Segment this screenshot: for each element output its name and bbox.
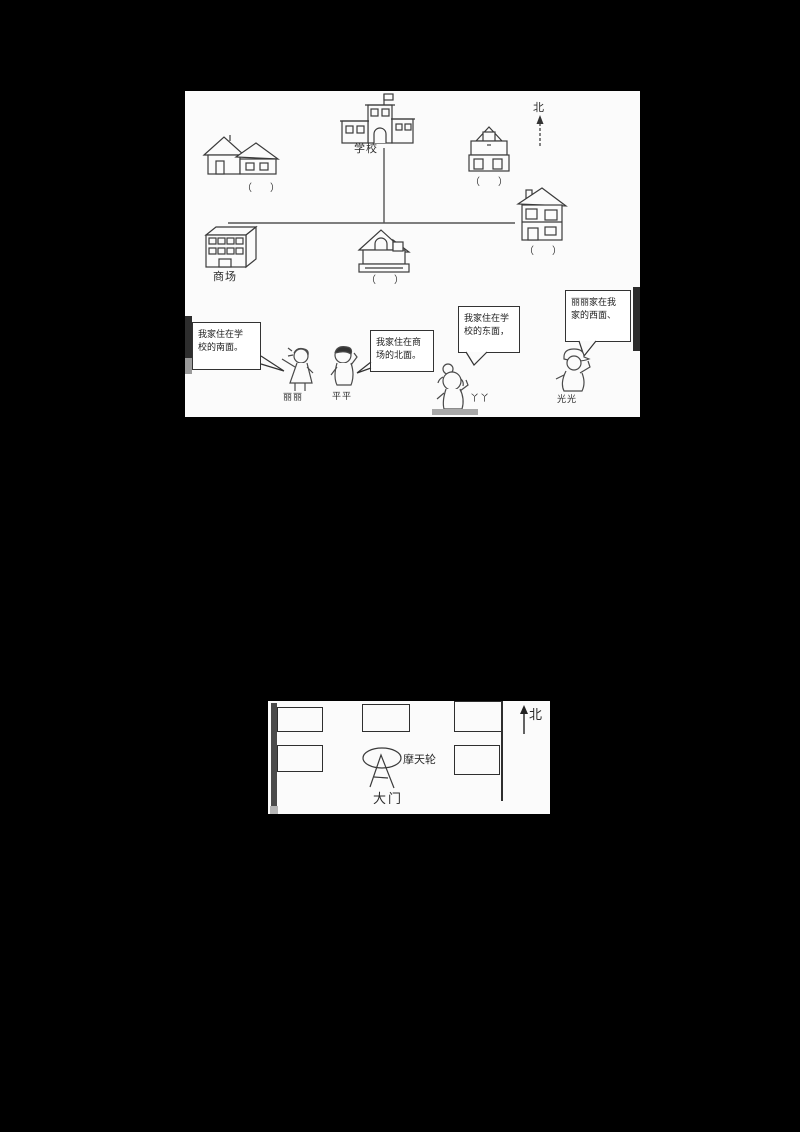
scan-artifact-right xyxy=(633,287,640,351)
speech-bubble-lili: 我家住在学 校的南面。 xyxy=(192,322,261,370)
bubble-yaya-line1: 我家住在学 xyxy=(464,312,516,325)
child-lili-illustration xyxy=(280,347,316,393)
gate-label: 大门 xyxy=(373,788,403,807)
scan-artifact-left xyxy=(185,316,192,358)
booth-rect-top-left xyxy=(277,707,323,732)
bubble-guangguang-line2: 家的西面、 xyxy=(571,309,627,322)
booth-rect-top-middle xyxy=(362,704,410,732)
mall-illustration xyxy=(204,225,258,271)
speech-bubble-yaya: 我家住在学 校的东面， xyxy=(458,306,520,353)
booth-rect-top-right xyxy=(454,701,502,732)
blank-south: （ ） xyxy=(366,271,408,286)
booth-rect-mid-right xyxy=(454,745,500,775)
child-name-guangguang: 光光 xyxy=(557,392,577,405)
scan-artifact-left-light xyxy=(185,358,192,374)
booth-rect-mid-left xyxy=(277,745,323,772)
house-northwest-illustration xyxy=(202,131,280,177)
bubble-lili-line2: 校的南面。 xyxy=(198,341,257,354)
ferris-wheel-illustration xyxy=(361,745,405,789)
blank-northeast: （ ） xyxy=(470,173,512,188)
north-label-bottom: 北 xyxy=(529,704,542,723)
bubble-pingping-line2: 场的北面。 xyxy=(376,349,430,362)
house-east-illustration xyxy=(516,186,568,244)
school-illustration xyxy=(340,93,416,145)
bubble-pingping-line1: 我家住在商 xyxy=(376,336,430,349)
speech-bubble-guangguang: 丽丽家在我 家的西面、 xyxy=(565,290,631,342)
mall-label: 商场 xyxy=(213,268,237,284)
bubble-lili-line1: 我家住在学 xyxy=(198,328,257,341)
child-name-yaya: 丫丫 xyxy=(470,391,490,404)
north-arrow-icon xyxy=(534,115,546,149)
child-yaya-illustration xyxy=(432,363,476,413)
map-panel-top: 北 学校 xyxy=(185,91,640,417)
school-label: 学校 xyxy=(354,140,378,156)
house-south-illustration xyxy=(355,226,413,276)
child-pingping-illustration xyxy=(325,345,363,391)
scan-artifact-smudge xyxy=(432,409,478,415)
child-name-pingping: 平平 xyxy=(332,389,352,402)
map-panel-bottom: 摩天轮 大门 北 xyxy=(268,701,550,814)
blank-east: （ ） xyxy=(524,242,566,257)
bubble-guangguang-line1: 丽丽家在我 xyxy=(571,296,627,309)
north-label-top: 北 xyxy=(533,99,544,115)
house-northeast-illustration xyxy=(466,125,512,175)
child-guangguang-illustration xyxy=(550,347,598,393)
scan-artifact-bottom-left xyxy=(270,806,278,814)
speech-bubble-pingping: 我家住在商 场的北面。 xyxy=(370,330,434,372)
child-name-lili: 丽丽 xyxy=(283,390,303,403)
ferris-wheel-label: 摩天轮 xyxy=(403,751,436,767)
bubble-yaya-line2: 校的东面， xyxy=(464,325,516,338)
blank-northwest: （ ） xyxy=(242,179,284,194)
